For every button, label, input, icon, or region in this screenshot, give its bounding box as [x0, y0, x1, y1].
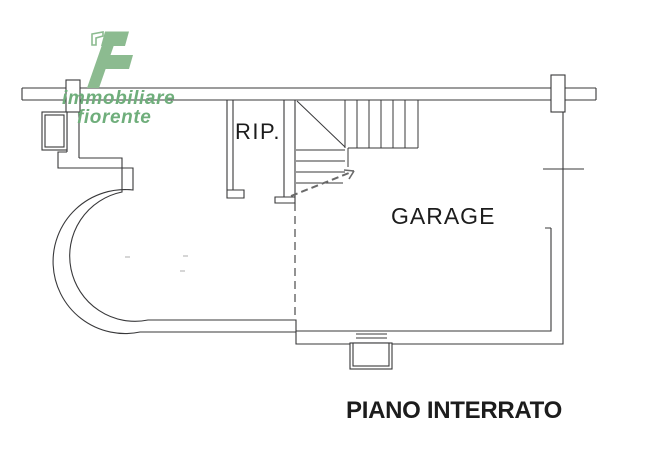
bottom-window-glazing: [356, 334, 387, 338]
rip-left-wall: [227, 100, 244, 198]
stair-landing-diagonal: [297, 101, 345, 147]
print-artifacts: [125, 256, 188, 271]
stair-treads-upper: [345, 100, 418, 148]
rip-room-walls: [227, 100, 295, 203]
room-label-garage: GARAGE: [391, 203, 495, 230]
rip-right-wall: [275, 100, 295, 203]
left-window-inner: [45, 115, 64, 147]
logo-f-mid-bar: [99, 55, 133, 69]
logo-text-line2: fiorente: [77, 107, 151, 129]
inner-contour: [70, 158, 551, 331]
stair-stringer: [348, 148, 418, 167]
logo-f-top-bar: [101, 32, 129, 47]
plan-caption: PIANO INTERRATO: [346, 397, 562, 425]
right-pillar: [551, 75, 565, 112]
logo-f-hook: [92, 32, 103, 45]
room-label-rip: RIP.: [235, 119, 281, 145]
staircase: [291, 100, 418, 196]
immobiliare-fiorente-logo-icon: [87, 32, 133, 89]
bottom-window-inner: [353, 343, 389, 366]
floorplan-page: immobiliare fiorente RIP. GARAGE PIANO I…: [0, 0, 653, 472]
